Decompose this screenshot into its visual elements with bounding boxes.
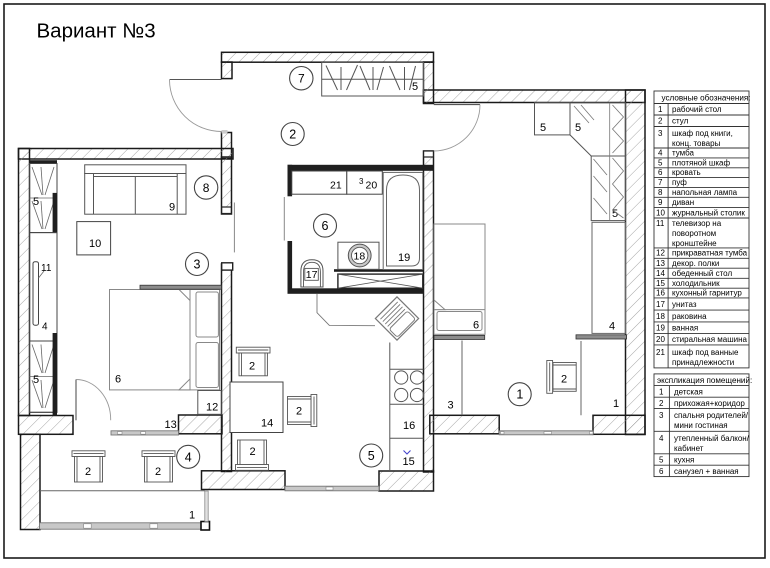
svg-text:14: 14	[261, 418, 273, 430]
svg-text:7: 7	[298, 72, 305, 86]
svg-text:5: 5	[368, 449, 375, 463]
svg-text:9: 9	[169, 202, 175, 214]
svg-text:рабочий стол: рабочий стол	[672, 105, 722, 114]
svg-text:11: 11	[41, 263, 52, 274]
svg-text:принадлежности: принадлежности	[672, 358, 734, 367]
svg-text:6: 6	[659, 467, 664, 476]
svg-text:санузел + ванная: санузел + ванная	[674, 467, 739, 476]
svg-text:4: 4	[658, 149, 663, 158]
svg-text:1: 1	[658, 105, 663, 114]
svg-text:напольная лампа: напольная лампа	[672, 188, 738, 197]
svg-text:кровать: кровать	[672, 168, 701, 177]
svg-text:2: 2	[289, 128, 296, 142]
svg-text:диван: диван	[672, 198, 694, 207]
svg-text:9: 9	[658, 198, 663, 207]
svg-text:6: 6	[322, 219, 329, 233]
svg-text:2: 2	[659, 399, 664, 408]
svg-text:2: 2	[296, 406, 302, 418]
svg-text:плотяной шкаф: плотяной шкаф	[672, 158, 730, 167]
svg-text:16: 16	[656, 289, 665, 298]
svg-text:холодильник: холодильник	[672, 279, 720, 288]
svg-text:15: 15	[656, 279, 665, 288]
svg-text:1: 1	[659, 388, 664, 397]
svg-text:прикраватная тумба: прикраватная тумба	[672, 249, 748, 258]
svg-text:тумба: тумба	[672, 149, 694, 158]
svg-text:8: 8	[658, 188, 663, 197]
svg-text:5: 5	[412, 81, 418, 93]
svg-text:декор. полки: декор. полки	[672, 259, 719, 268]
svg-text:4: 4	[185, 450, 192, 464]
svg-text:1: 1	[516, 388, 523, 402]
svg-text:5: 5	[540, 122, 546, 134]
svg-text:13: 13	[165, 419, 177, 431]
svg-text:спальня родителей/: спальня родителей/	[674, 411, 749, 420]
svg-text:кронштейне: кронштейне	[672, 239, 717, 248]
svg-text:3: 3	[659, 411, 664, 420]
svg-text:18: 18	[656, 312, 665, 321]
svg-text:2: 2	[658, 117, 663, 126]
svg-text:5: 5	[658, 158, 663, 167]
svg-text:3: 3	[359, 177, 364, 186]
svg-text:2: 2	[85, 466, 91, 478]
svg-text:17: 17	[656, 300, 665, 309]
svg-text:5: 5	[575, 122, 581, 134]
svg-text:2: 2	[155, 466, 161, 478]
svg-text:детская: детская	[674, 388, 703, 397]
svg-text:1: 1	[189, 510, 195, 522]
svg-text:21: 21	[656, 348, 665, 357]
svg-text:6: 6	[115, 374, 121, 386]
svg-text:ванная: ванная	[672, 324, 698, 333]
svg-text:шкаф под ванные: шкаф под ванные	[672, 348, 739, 357]
svg-text:стул: стул	[672, 117, 689, 126]
svg-text:утепленный балкон/: утепленный балкон/	[674, 434, 750, 443]
svg-text:2: 2	[250, 446, 256, 458]
svg-text:6: 6	[658, 168, 663, 177]
svg-text:14: 14	[656, 269, 665, 278]
svg-text:7: 7	[658, 178, 663, 187]
svg-text:конц. товары: конц. товары	[672, 139, 721, 148]
svg-text:2: 2	[561, 374, 567, 386]
svg-text:13: 13	[656, 259, 665, 268]
svg-text:унитаз: унитаз	[672, 300, 697, 309]
svg-text:11: 11	[656, 219, 665, 228]
svg-text:пуф: пуф	[672, 178, 687, 187]
svg-text:12: 12	[206, 402, 218, 414]
svg-text:экспликация помещений:: экспликация помещений:	[657, 376, 752, 385]
svg-text:1: 1	[613, 398, 619, 410]
svg-text:5: 5	[33, 374, 39, 386]
svg-text:5: 5	[659, 456, 664, 465]
svg-text:19: 19	[656, 324, 665, 333]
svg-text:16: 16	[403, 420, 415, 432]
svg-text:стиральная машина: стиральная машина	[672, 335, 748, 344]
svg-text:17: 17	[306, 269, 318, 281]
svg-text:10: 10	[89, 238, 101, 250]
svg-text:кухня: кухня	[674, 456, 694, 465]
svg-text:3: 3	[658, 129, 663, 138]
svg-text:4: 4	[42, 322, 48, 333]
svg-text:20: 20	[366, 180, 378, 192]
svg-text:10: 10	[656, 208, 665, 217]
svg-text:6: 6	[473, 320, 479, 332]
svg-text:поворотном: поворотном	[672, 229, 716, 238]
svg-text:8: 8	[203, 181, 210, 195]
svg-text:кабинет: кабинет	[674, 444, 704, 453]
svg-text:18: 18	[354, 251, 366, 263]
svg-text:3: 3	[194, 258, 201, 272]
svg-text:2: 2	[249, 361, 255, 373]
svg-text:раковина: раковина	[672, 312, 707, 321]
svg-text:15: 15	[403, 456, 415, 468]
svg-text:телевизор на: телевизор на	[672, 219, 722, 228]
svg-text:журнальный столик: журнальный столик	[672, 208, 745, 217]
svg-text:кухонный гарнитур: кухонный гарнитур	[672, 289, 742, 298]
svg-text:прихожая+коридор: прихожая+коридор	[674, 399, 745, 408]
svg-text:шкаф под книги,: шкаф под книги,	[672, 129, 733, 138]
svg-text:обеденный стол: обеденный стол	[672, 269, 732, 278]
svg-text:4: 4	[609, 321, 615, 333]
svg-text:19: 19	[398, 252, 410, 264]
svg-text:21: 21	[330, 180, 342, 192]
svg-text:условные обозначения:: условные обозначения:	[662, 94, 751, 103]
svg-text:Вариант №3: Вариант №3	[37, 20, 156, 43]
svg-text:4: 4	[659, 434, 664, 443]
svg-text:мини гостиная: мини гостиная	[674, 421, 728, 430]
svg-text:12: 12	[656, 249, 665, 258]
svg-text:5: 5	[33, 196, 39, 208]
svg-text:20: 20	[656, 335, 665, 344]
svg-text:3: 3	[448, 400, 454, 412]
